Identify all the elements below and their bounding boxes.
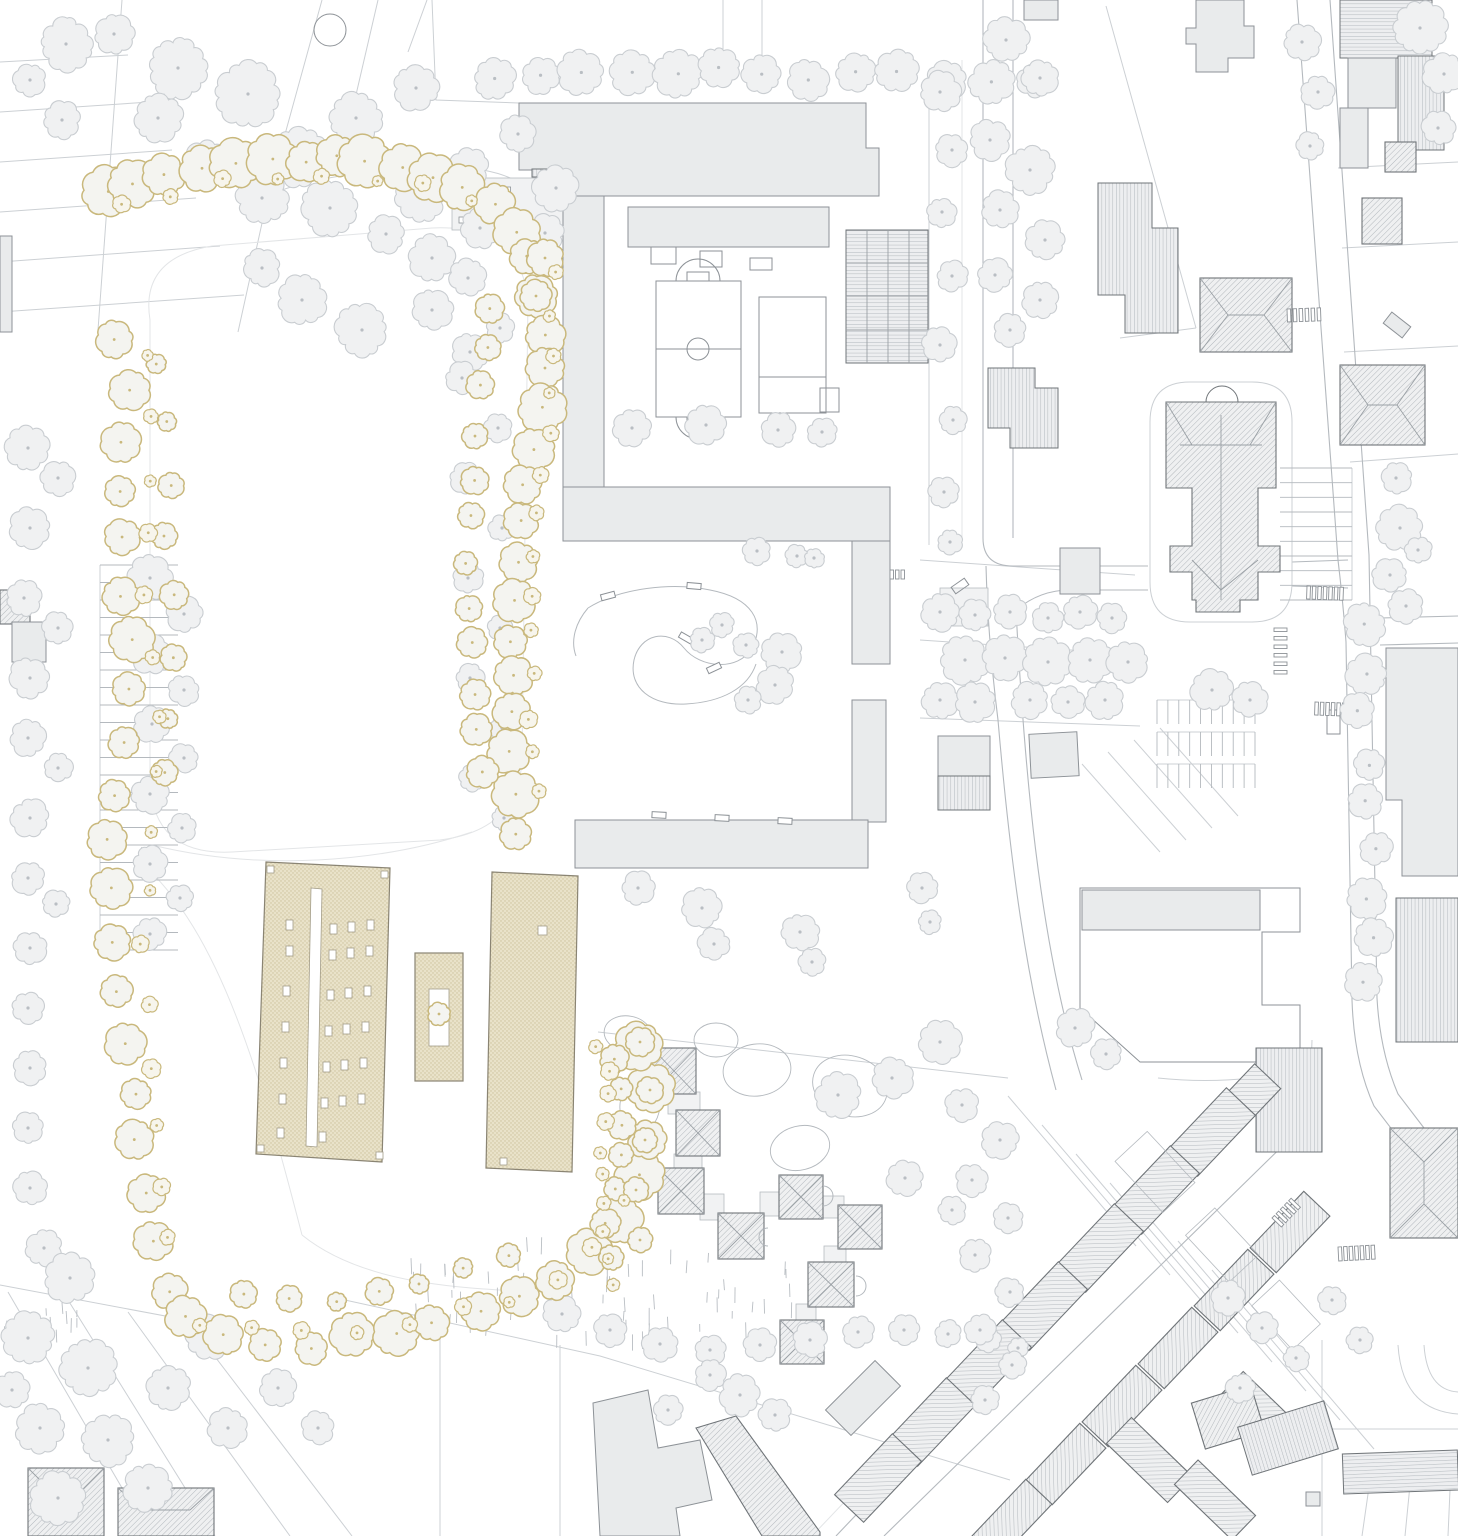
skylight: [280, 1058, 287, 1068]
tree-center-dot: [940, 210, 943, 213]
tree-center-dot: [890, 1076, 893, 1079]
tree-center-dot: [518, 1295, 521, 1298]
slab-block: [1342, 1450, 1458, 1494]
tree-center-dot: [638, 1173, 641, 1176]
zebra-bar: [1307, 586, 1311, 599]
skylight: [319, 1132, 326, 1142]
tree-center-dot: [836, 1093, 839, 1096]
house-hip: [1362, 198, 1402, 244]
detail-rect: [687, 272, 709, 281]
tree-center-dot: [548, 392, 551, 395]
tree-center-dot: [148, 792, 151, 795]
tree-center-dot: [300, 1329, 303, 1332]
tree-center-dot: [544, 257, 547, 260]
detail-path: [574, 608, 588, 656]
tree-center-dot: [139, 943, 142, 946]
tree-center-dot: [639, 1041, 642, 1044]
tree-center-dot: [780, 650, 783, 653]
tree-center-dot: [507, 1254, 510, 1257]
tree-center-dot: [121, 536, 124, 539]
tree-center-dot: [1374, 847, 1377, 850]
tree-center-dot: [513, 599, 516, 602]
tree-center-dot: [1316, 90, 1319, 93]
outbuilding: [938, 776, 990, 810]
tree-center-dot: [983, 1398, 986, 1401]
tree-center-dot: [178, 896, 181, 899]
tree-existing: [334, 303, 386, 358]
tree-center-dot: [509, 640, 512, 643]
tree-center-dot: [300, 298, 303, 301]
tree-center-dot: [515, 231, 518, 234]
zebra-bar: [1329, 587, 1333, 600]
skylight: [329, 950, 336, 960]
tree-center-dot: [222, 1333, 225, 1336]
tree-center-dot: [226, 1426, 229, 1429]
tree-center-dot: [700, 906, 703, 909]
tree-center-dot: [560, 1312, 563, 1315]
tree-center-dot: [666, 1408, 669, 1411]
tree-center-dot: [163, 535, 166, 538]
bench: [715, 815, 729, 822]
tree-center-dot: [1294, 1356, 1297, 1359]
tree-center-dot: [163, 771, 166, 774]
zebra-bar: [1274, 637, 1287, 641]
tree-center-dot: [432, 176, 435, 179]
tree-center-dot: [156, 116, 159, 119]
tree-center-dot: [152, 1240, 155, 1243]
tree-center-dot: [614, 1188, 617, 1191]
tree-center-dot: [612, 1284, 615, 1287]
tree-center-dot: [26, 446, 29, 449]
reed-stroke: [66, 1311, 67, 1324]
tree-center-dot: [950, 274, 953, 277]
tree-center-dot: [1028, 168, 1031, 171]
zebra-bar: [1287, 309, 1291, 322]
zebra-bar: [1274, 654, 1287, 658]
zebra-bar: [1274, 671, 1287, 675]
tree-center-dot: [532, 448, 535, 451]
parking-comb: [1280, 468, 1352, 600]
tree-center-dot: [708, 1348, 711, 1351]
tree-center-dot: [395, 1332, 398, 1335]
reed-stroke: [707, 1292, 708, 1302]
tree-center-dot: [760, 73, 763, 76]
tree-center-dot: [608, 1070, 611, 1073]
school-classroom-strip: [628, 207, 829, 247]
tree-center-dot: [147, 531, 150, 534]
tree-center-dot: [630, 426, 633, 429]
zebra-bar: [1311, 308, 1315, 321]
tree-center-dot: [602, 1202, 605, 1205]
skylight: [282, 1022, 289, 1032]
tree-center-dot: [363, 160, 366, 163]
reed-stroke: [654, 1294, 655, 1309]
tree-center-dot: [1046, 660, 1049, 663]
tree-center-dot: [1004, 38, 1007, 41]
boundary-line: [1344, 346, 1458, 352]
tree-center-dot: [378, 1290, 381, 1293]
tree-center-dot: [520, 519, 523, 522]
tree-center-dot: [508, 750, 511, 753]
tree-center-dot: [276, 178, 279, 181]
roof-corner-mark: [376, 1152, 383, 1159]
tree-center-dot: [1226, 1296, 1229, 1299]
tree-center-dot: [1404, 604, 1407, 607]
tree-center-dot: [54, 902, 57, 905]
house-hip: [1385, 142, 1416, 172]
tree-center-dot: [755, 549, 758, 552]
tree-center-dot: [160, 1186, 163, 1189]
tree-center-dot: [704, 423, 707, 426]
skylight: [348, 922, 355, 932]
tree-center-dot: [1043, 238, 1046, 241]
tree-center-dot: [148, 862, 151, 865]
garden-shed: [1174, 1460, 1255, 1536]
tree-center-dot: [620, 1154, 623, 1157]
zebra-bar: [1299, 308, 1303, 321]
tree-center-dot: [158, 715, 161, 718]
zebra-bar: [1365, 1245, 1369, 1259]
tree-center-dot: [856, 1330, 859, 1333]
tree-center-dot: [155, 770, 158, 773]
tree-center-dot: [149, 889, 152, 892]
tree-center-dot: [170, 484, 173, 487]
skylight: [327, 990, 334, 1000]
skylight: [321, 1098, 328, 1108]
tree-center-dot: [601, 1230, 604, 1233]
zebra-bar: [1334, 587, 1338, 600]
tree-center-dot: [812, 556, 815, 559]
tree-center-dot: [131, 638, 134, 641]
detail-path: [856, 1276, 866, 1296]
tree-center-dot: [150, 722, 153, 725]
tree-center-dot: [1104, 1052, 1107, 1055]
tree-center-dot: [438, 1013, 441, 1016]
tree-center-dot: [758, 1343, 761, 1346]
reed-stroke: [724, 1279, 725, 1290]
tree-center-dot: [376, 180, 379, 183]
tree-center-dot: [409, 1323, 412, 1326]
tree-center-dot: [26, 876, 29, 879]
tree-center-dot: [384, 232, 387, 235]
tree-center-dot: [970, 1178, 973, 1181]
tree-center-dot: [260, 196, 263, 199]
tree-center-dot: [133, 1138, 136, 1141]
tree-center-dot: [260, 266, 263, 269]
zebra-bar: [1305, 308, 1309, 321]
tree-center-dot: [820, 430, 823, 433]
tree-center-dot: [717, 66, 720, 69]
building-L-hatched: [1098, 183, 1178, 333]
tree-center-dot: [335, 1300, 338, 1303]
tree-center-dot: [38, 1426, 41, 1429]
tree-center-dot: [1436, 126, 1439, 129]
school-south-wing: [575, 820, 868, 868]
tree-center-dot: [948, 540, 951, 543]
tree-center-dot: [1238, 1386, 1241, 1389]
tree-center-dot: [1028, 698, 1031, 701]
boundary-line: [0, 295, 244, 312]
tree-center-dot: [150, 831, 153, 834]
skylight: [362, 1022, 369, 1032]
new-building-west: [256, 862, 390, 1162]
reed-stroke: [686, 1260, 687, 1273]
tree-center-dot: [544, 367, 547, 370]
tree-center-dot: [677, 72, 680, 75]
tree-center-dot: [360, 328, 363, 331]
skylight: [367, 920, 374, 930]
tree-center-dot: [56, 1496, 59, 1499]
zebra-bar: [1317, 308, 1321, 321]
roof-corner-mark: [267, 866, 274, 873]
tree-center-dot: [182, 756, 185, 759]
tree-center-dot: [1248, 698, 1251, 701]
tree-center-dot: [556, 1278, 559, 1281]
tree-center-dot: [112, 32, 115, 35]
tree-center-dot: [22, 596, 25, 599]
tree-existing: [0, 1372, 30, 1408]
tree-center-dot: [951, 418, 954, 421]
boundary-line: [1424, 1345, 1458, 1392]
tree-center-dot: [316, 1426, 319, 1429]
tree-center-dot: [920, 886, 923, 889]
tree-center-dot: [902, 1328, 905, 1331]
tree-center-dot: [471, 641, 474, 644]
zebra-bar: [1293, 309, 1297, 322]
tree-center-dot: [1008, 1290, 1011, 1293]
tree-center-dot: [145, 1192, 148, 1195]
tree-center-dot: [86, 1366, 89, 1369]
tree-center-dot: [479, 384, 482, 387]
tree-center-dot: [169, 195, 172, 198]
skylight: [279, 1094, 286, 1104]
house: [1024, 0, 1058, 20]
zebra-bar: [1343, 1247, 1347, 1261]
tree-center-dot: [533, 672, 536, 675]
tree-center-dot: [148, 932, 151, 935]
tree-center-dot: [993, 273, 996, 276]
school-gym-wing: [563, 196, 604, 487]
zebra-bar: [1312, 586, 1316, 599]
new-building-east: [486, 872, 578, 1172]
tree-center-dot: [150, 415, 153, 418]
tree-center-dot: [131, 183, 134, 186]
tree-center-dot: [990, 80, 993, 83]
tree-center-dot: [165, 420, 168, 423]
tree-center-dot: [461, 186, 464, 189]
skylight: [325, 1026, 332, 1036]
tree-center-dot: [594, 1045, 597, 1048]
housing-block: [1340, 108, 1368, 168]
tree-center-dot: [198, 1324, 201, 1327]
roof-corner-mark: [257, 1145, 264, 1152]
school-annex: [593, 1390, 712, 1536]
tree-center-dot: [795, 554, 798, 557]
zebra-bar: [1323, 587, 1327, 600]
tree-center-dot: [221, 177, 224, 180]
tree-existing: [41, 17, 93, 73]
school-east-wing-lower: [852, 700, 886, 822]
reed-stroke: [411, 1258, 412, 1274]
skylight: [286, 920, 293, 930]
tree-center-dot: [246, 92, 249, 95]
tree-center-dot: [1088, 658, 1091, 661]
tree-center-dot: [531, 595, 534, 598]
tree-center-dot: [1363, 622, 1366, 625]
annex-room: [750, 258, 772, 270]
tree-center-dot: [176, 66, 179, 69]
zebra-crossing: [1338, 1245, 1375, 1261]
tree-center-dot: [180, 826, 183, 829]
tree-center-dot: [328, 206, 331, 209]
tree-center-dot: [773, 683, 776, 686]
tree-center-dot: [168, 1290, 171, 1293]
tree-center-dot: [517, 561, 520, 564]
tree-center-dot: [478, 226, 481, 229]
tree-center-dot: [124, 1042, 127, 1045]
tree-center-dot: [106, 1438, 109, 1441]
boundary-line: [1292, 560, 1348, 562]
tree-center-dot: [988, 138, 991, 141]
annex-room: [700, 251, 722, 267]
skylight: [323, 1062, 330, 1072]
tree-center-dot: [998, 208, 1001, 211]
zebra-bar: [1338, 1247, 1342, 1261]
tree-center-dot: [621, 1124, 624, 1127]
tree-center-dot: [468, 607, 471, 610]
zebra-bar: [1360, 1246, 1364, 1260]
tree-center-dot: [486, 346, 489, 349]
boundary-line: [0, 150, 172, 162]
skylight: [345, 988, 352, 998]
tree-center-dot: [580, 71, 583, 74]
tree-center-dot: [106, 838, 109, 841]
tree-center-dot: [468, 350, 471, 353]
site-plan-canvas: [0, 0, 1458, 1536]
tree-center-dot: [264, 1344, 267, 1347]
garden-blob: [720, 1040, 795, 1101]
reed-stroke: [628, 1264, 629, 1277]
tree-center-dot: [56, 626, 59, 629]
tree-center-dot: [973, 613, 976, 616]
tree-center-dot: [460, 376, 463, 379]
tree-center-dot: [401, 166, 404, 169]
tree-center-dot: [356, 1332, 359, 1335]
tree-center-dot: [549, 432, 552, 435]
tree-center-dot: [798, 930, 801, 933]
tree-center-dot: [56, 766, 59, 769]
tree-center-dot: [26, 1126, 29, 1129]
zebra-bar: [1274, 628, 1287, 632]
tree-center-dot: [514, 793, 517, 796]
boundary-line: [1350, 454, 1458, 462]
outbuilding: [938, 736, 990, 776]
detail-path: [676, 259, 720, 281]
tree-center-dot: [942, 490, 945, 493]
tree-center-dot: [113, 794, 116, 797]
boundary-line: [1405, 1485, 1410, 1536]
tree-center-dot: [42, 1246, 45, 1249]
zebra-crossing: [890, 570, 905, 579]
bleachers: [846, 230, 928, 363]
tree-center-dot: [146, 354, 149, 357]
tree-center-dot: [502, 816, 505, 819]
tree-center-dot: [604, 1120, 607, 1123]
tree-center-dot: [938, 698, 941, 701]
tree-center-dot: [1416, 548, 1419, 551]
tree-center-dot: [527, 718, 530, 721]
tree-center-dot: [201, 167, 204, 170]
tree-center-dot: [466, 576, 469, 579]
tree-center-dot: [155, 363, 158, 366]
slab-block: [1386, 648, 1458, 876]
skylight: [339, 1096, 346, 1106]
tree-center-dot: [473, 479, 476, 482]
tree-center-dot: [938, 90, 941, 93]
tree-center-dot: [496, 426, 499, 429]
tree-center-dot: [1394, 476, 1397, 479]
tree-center-dot: [493, 77, 496, 80]
building-stepped: [988, 368, 1058, 448]
bench: [600, 591, 615, 600]
tree-center-dot: [163, 173, 166, 176]
tree-center-dot: [544, 334, 547, 337]
zebra-bar: [1354, 1246, 1358, 1260]
zebra-bar: [890, 570, 894, 579]
tree-center-dot: [143, 594, 146, 597]
tree-center-dot: [1210, 688, 1213, 691]
tree-center-dot: [946, 1332, 949, 1335]
tree-center-dot: [631, 71, 634, 74]
row-house: [1250, 1191, 1330, 1272]
tree-center-dot: [531, 750, 534, 753]
skylight: [343, 1024, 350, 1034]
tree-center-dot: [998, 1138, 1001, 1141]
shed: [1306, 1492, 1320, 1506]
tree-center-dot: [500, 526, 503, 529]
tree-center-dot: [28, 816, 31, 819]
tree-center-dot: [854, 70, 857, 73]
tree-center-dot: [430, 308, 433, 311]
tree-center-dot: [462, 1267, 465, 1270]
tree-center-dot: [150, 1067, 153, 1070]
tree-center-dot: [623, 1199, 626, 1202]
zebra-crossing: [1274, 628, 1287, 674]
tree-center-dot: [1365, 897, 1368, 900]
tree-center-dot: [808, 1338, 811, 1341]
tree-center-dot: [128, 389, 131, 392]
outbuilding: [1060, 548, 1100, 594]
tree-center-dot: [973, 1253, 976, 1256]
zebra-bar: [896, 570, 900, 579]
tree-center-dot: [601, 1173, 604, 1176]
zebra-bar: [1331, 703, 1335, 716]
garden-blob: [766, 1119, 835, 1176]
tree-center-dot: [538, 790, 541, 793]
tree-center-dot: [720, 623, 723, 626]
tree-center-dot: [28, 1066, 31, 1069]
tree-center-dot: [111, 941, 114, 944]
tree-center-dot: [960, 1103, 963, 1106]
skylight: [538, 926, 547, 935]
tree-center-dot: [535, 511, 538, 514]
reed-stroke: [624, 1297, 625, 1311]
tree-center-dot: [498, 326, 501, 329]
tree-center-dot: [978, 1328, 981, 1331]
tree-center-dot: [470, 514, 473, 517]
tree-center-dot: [123, 741, 126, 744]
reed-stroke: [623, 1311, 624, 1321]
